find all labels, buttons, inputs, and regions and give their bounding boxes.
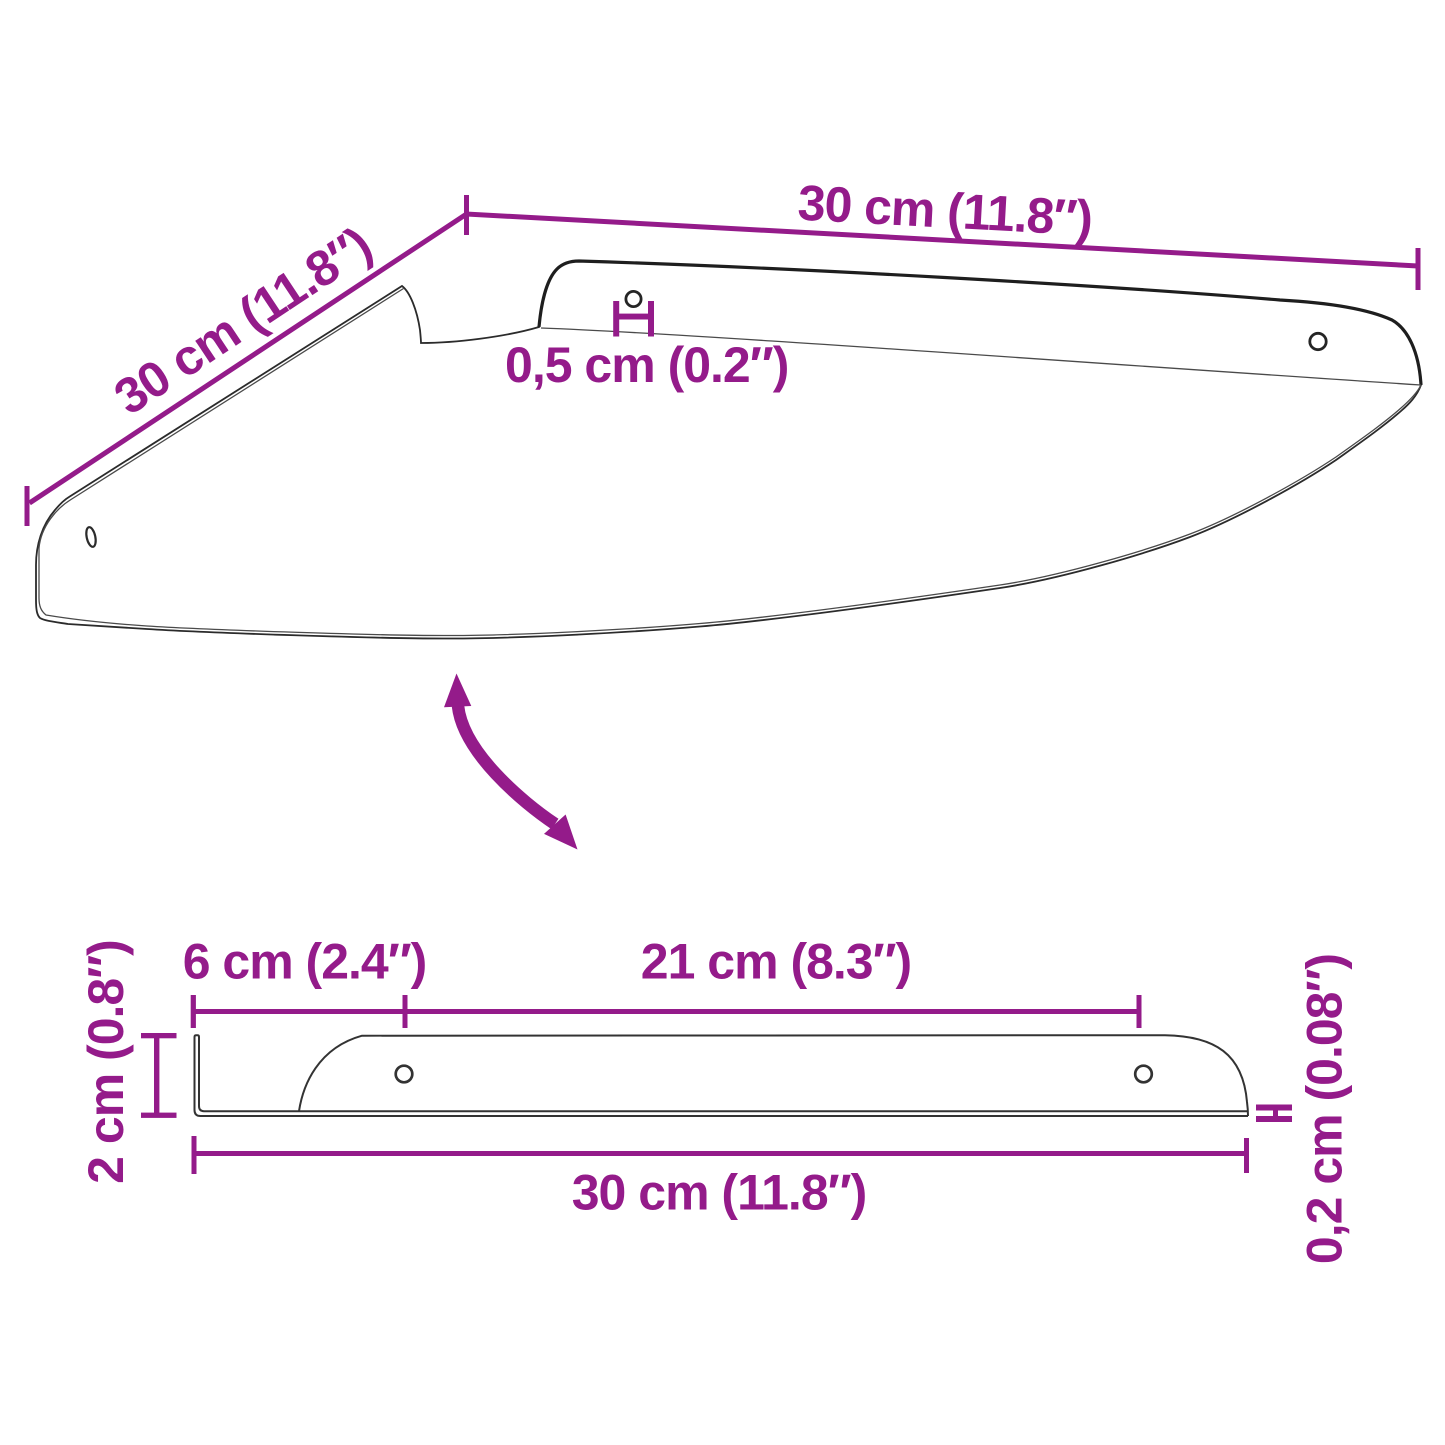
svg-text:6 cm (2.4″): 6 cm (2.4″) <box>183 934 427 990</box>
svg-text:30 cm (11.8″): 30 cm (11.8″) <box>572 1165 866 1221</box>
svg-text:0,2 cm (0.08″): 0,2 cm (0.08″) <box>1297 954 1353 1264</box>
svg-text:21 cm (8.3″): 21 cm (8.3″) <box>641 934 911 990</box>
svg-text:0,5 cm (0.2″): 0,5 cm (0.2″) <box>505 337 788 393</box>
svg-text:2 cm (0.8″): 2 cm (0.8″) <box>78 940 134 1184</box>
